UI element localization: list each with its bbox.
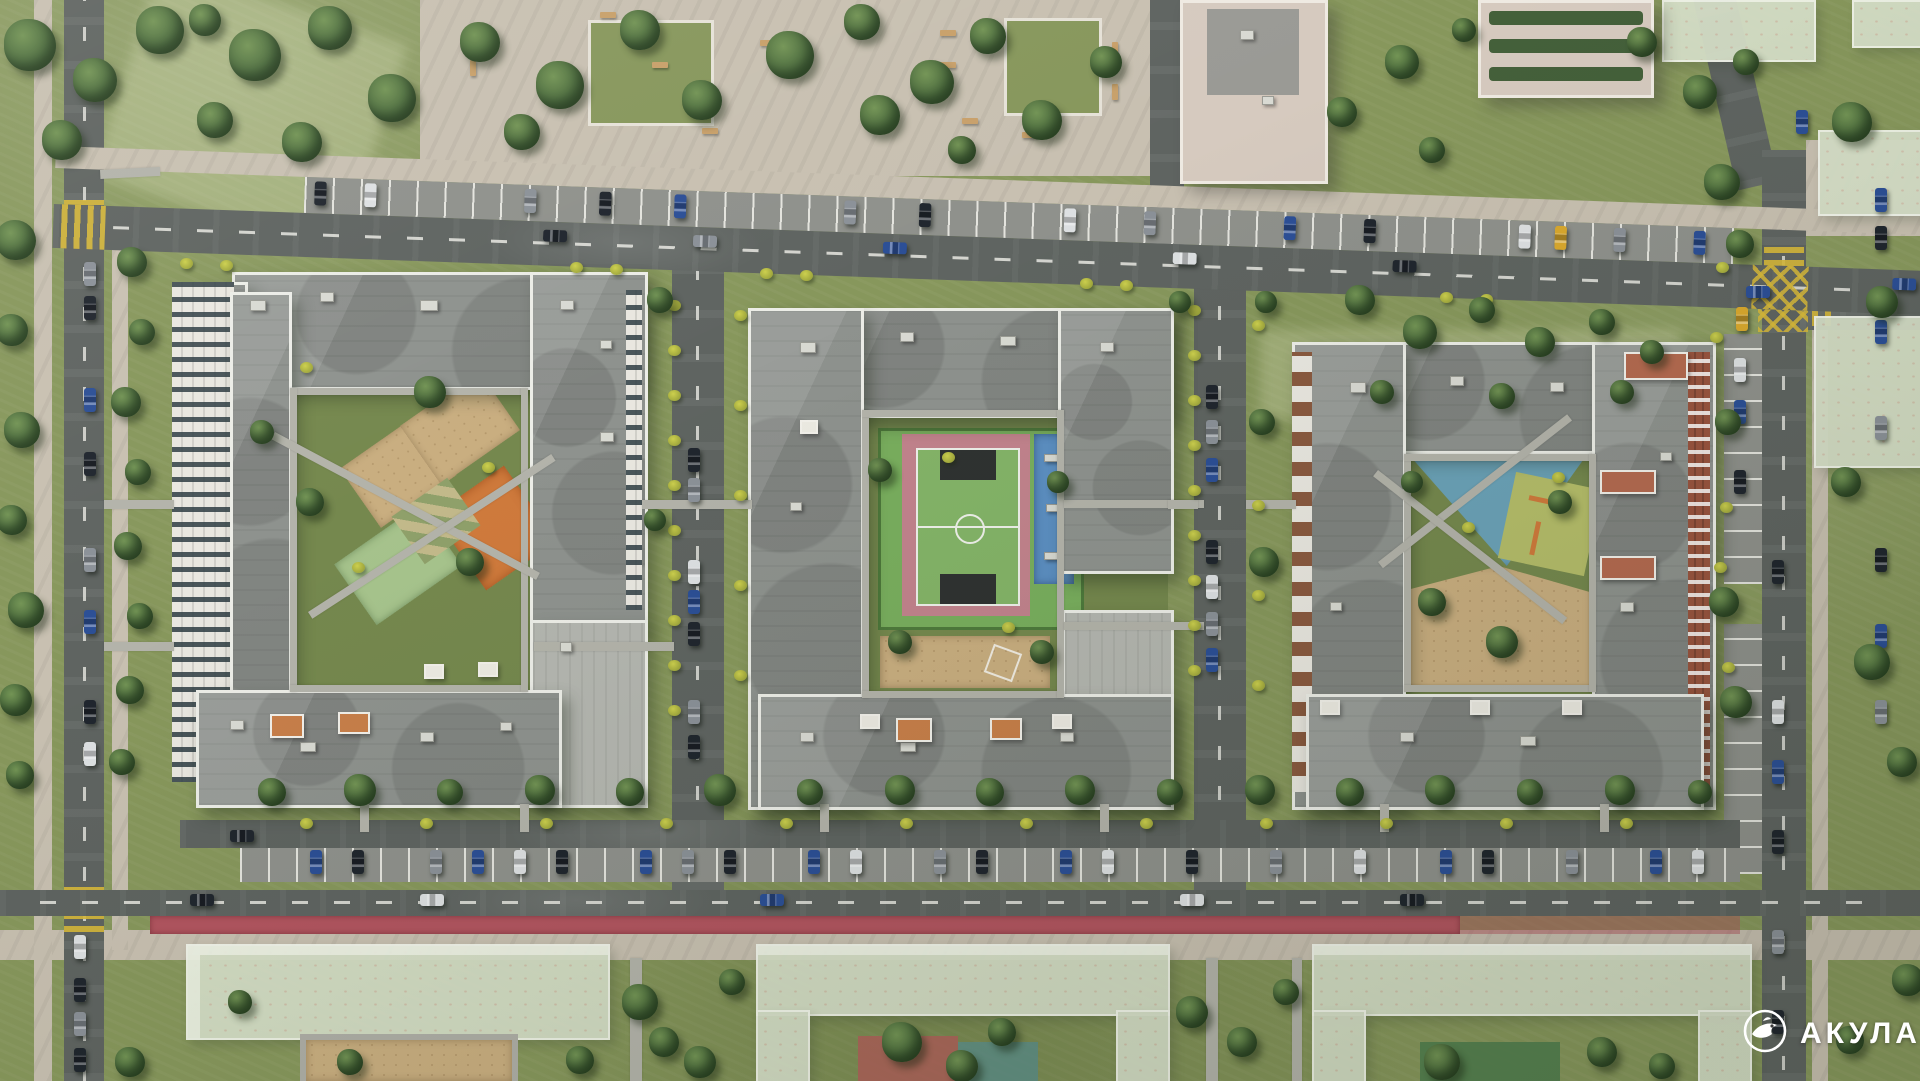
tree [344,774,376,806]
tree [1486,626,1518,658]
tree [620,10,660,50]
tree [860,95,900,135]
akula-logo-text: АКУЛА [1800,1017,1920,1051]
tree [910,60,954,104]
tree [1589,309,1615,335]
tree [197,102,233,138]
tree [766,31,814,79]
tree [1704,164,1740,200]
tree [1030,640,1054,664]
tree [1709,587,1739,617]
tree [1469,297,1495,323]
tree [111,387,141,417]
tree [1418,588,1446,616]
tree [1345,285,1375,315]
tree [1255,291,1277,313]
tree [1887,747,1917,777]
tree [1249,547,1279,577]
tree [885,775,915,805]
tree [1452,18,1476,42]
tree [616,778,644,806]
tree [1605,775,1635,805]
tree [649,1027,679,1057]
tree [0,684,32,716]
tree [1831,467,1861,497]
tree [125,459,151,485]
tree [1866,286,1898,318]
tree [1688,780,1712,804]
tree [1273,979,1299,1005]
tree [460,22,500,62]
tree [117,247,147,277]
tree [115,1047,145,1077]
tree [1892,964,1920,996]
tree [504,114,540,150]
tree [797,779,823,805]
tree [1733,49,1759,75]
tree-layer [0,0,1920,1081]
tree [308,6,352,50]
tree [414,376,446,408]
tree [1726,230,1754,258]
tree [1327,97,1357,127]
tree [970,18,1006,54]
tree [8,592,44,628]
tree [437,779,463,805]
tree [456,548,484,576]
tree [1401,471,1423,493]
tree [1627,27,1657,57]
tree [189,4,221,36]
tree [1489,383,1515,409]
tree [282,122,322,162]
tree [1245,775,1275,805]
tree [1047,471,1069,493]
tree [6,761,34,789]
tree [42,120,82,160]
tree [719,969,745,995]
tree [988,1018,1016,1046]
tree [1090,46,1122,78]
tree [566,1046,594,1074]
tree [258,778,286,806]
tree [0,314,28,346]
tree [1419,137,1445,163]
tree [682,80,722,120]
tree [4,19,56,71]
tree [1832,102,1872,142]
tree [536,61,584,109]
tree [1525,327,1555,357]
tree [1683,75,1717,109]
tree [1157,779,1183,805]
tree [1022,100,1062,140]
tree [4,412,40,448]
tree [525,775,555,805]
tree [1640,340,1664,364]
tree [684,1046,716,1078]
tree [976,778,1004,806]
tree [296,488,324,516]
tree [1385,45,1419,79]
tree [114,532,142,560]
tree [250,420,274,444]
tree [0,505,27,535]
tree [1548,490,1572,514]
tree [888,630,912,654]
tree [1649,1053,1675,1079]
tree [73,58,117,102]
tree [228,990,252,1014]
tree [1715,409,1741,435]
tree [109,749,135,775]
tree [1517,779,1543,805]
tree [1370,380,1394,404]
tree [1227,1027,1257,1057]
tree [622,984,658,1020]
shark-icon [1742,1008,1788,1059]
tree [1249,409,1275,435]
tree [337,1049,363,1075]
aerial-site-plan: АКУЛА [0,0,1920,1081]
tree [948,136,976,164]
tree [1610,380,1634,404]
tree [127,603,153,629]
tree [1169,291,1191,313]
tree [116,676,144,704]
tree [1403,315,1437,349]
akula-logo: АКУЛА [1742,1008,1920,1059]
tree [129,319,155,345]
tree [1424,1044,1460,1080]
tree [882,1022,922,1062]
tree [644,509,666,531]
tree [946,1050,978,1081]
tree [136,6,184,54]
tree [844,4,880,40]
tree [868,458,892,482]
tree [1176,996,1208,1028]
tree [229,29,281,81]
tree [1587,1037,1617,1067]
tree [1336,778,1364,806]
tree [0,220,36,260]
tree [704,774,736,806]
tree [647,287,673,313]
tree [1065,775,1095,805]
tree [368,74,416,122]
tree [1720,686,1752,718]
tree [1425,775,1455,805]
tree [1854,644,1890,680]
